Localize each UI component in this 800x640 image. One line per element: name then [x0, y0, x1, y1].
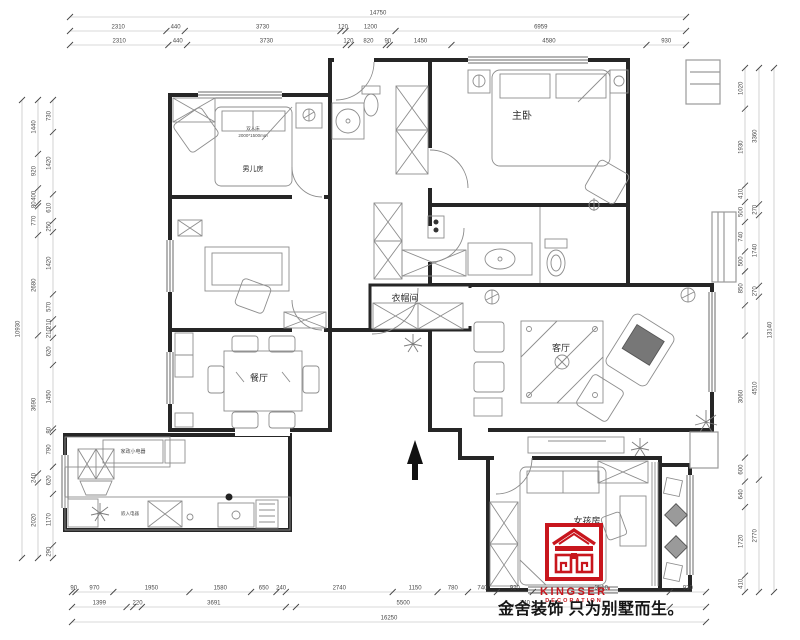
dim-label: 290 [47, 546, 53, 557]
dim-label: 3060 [739, 389, 745, 403]
dim-label: 210 [47, 328, 53, 339]
dim-label: 80 [47, 426, 53, 433]
dim-top-row-3: 231044037301208209014504580930 [67, 39, 689, 49]
dim-label: 16250 [381, 616, 398, 622]
dim-label: 1399 [93, 601, 107, 607]
dim-label: 610 [47, 202, 53, 213]
dim-label: 410 [739, 188, 745, 199]
dim-label: 570 [47, 301, 53, 312]
dim-label: 240 [276, 586, 287, 592]
dim-label: 1200 [364, 25, 378, 31]
dim-label: 1450 [414, 39, 428, 45]
dim-label: 850 [739, 283, 745, 294]
room-label-master-bedroom: 主卧 [512, 109, 532, 122]
dim-label: 4580 [542, 39, 556, 45]
dim-label: 3730 [260, 39, 274, 45]
watermark-slogan: 金舍装饰 只为别墅而生。 [498, 595, 698, 619]
dim-label: 780 [448, 586, 459, 592]
dim-label: 13140 [768, 321, 774, 338]
bed-size-label: 2000*1500mm [238, 133, 268, 138]
dim-label: 6959 [534, 25, 548, 31]
dim-label: 640 [739, 489, 745, 500]
dim-right-total: 13140 [768, 65, 778, 595]
dim-right-row-2: 3360270174027045102770 [753, 65, 763, 595]
dim-label: 600 [739, 464, 745, 475]
dim-label: 770 [32, 215, 38, 226]
dim-label: 2740 [333, 586, 347, 592]
dim-label: 4510 [753, 381, 759, 395]
dim-label: 3360 [753, 129, 759, 143]
dim-label: 930 [683, 586, 694, 592]
dim-label: 90 [70, 586, 77, 592]
dim-label: 1420 [47, 256, 53, 270]
kingser-logo: KINGSER' DECORATION [540, 523, 608, 605]
built-in-appliance-label: 嵌入电器 [121, 510, 139, 517]
dim-label: 920 [32, 165, 38, 176]
dim-label: 410 [739, 578, 745, 589]
dim-label: 790 [47, 444, 53, 455]
dim-label: 1720 [739, 534, 745, 548]
dim-right-row-3: 1020193041050074050085030606006401720410 [739, 65, 749, 595]
dim-label: 650 [259, 586, 270, 592]
dim-label: 620 [47, 475, 53, 486]
dim-label: 1150 [409, 586, 423, 592]
dim-label: 740 [477, 586, 488, 592]
dim-label: 2770 [753, 528, 759, 542]
room-label-dining-room: 餐厅 [250, 372, 268, 383]
dim-label: 1020 [739, 81, 745, 95]
dim-label: 440 [173, 39, 184, 45]
floor-plan-page: 1475023104403730120120069592310440373012… [0, 0, 800, 640]
dim-label: 220 [133, 601, 144, 607]
dim-label: 1930 [739, 140, 745, 154]
floor-plan-svg: 1475023104403730120120069592310440373012… [0, 0, 800, 640]
dim-label: 500 [739, 256, 745, 267]
bed-type-label: 双人床 [246, 125, 260, 132]
dim-label: 2310 [112, 25, 126, 31]
dim-label: 400 [32, 190, 38, 201]
dim-label: 3690 [32, 397, 38, 411]
dim-label: 820 [363, 39, 374, 45]
north-arrow [407, 440, 423, 480]
dim-label: 250 [47, 221, 53, 232]
dim-label: 3691 [207, 601, 221, 607]
room-label-boys-room: 男儿房 [243, 164, 264, 173]
dim-label: 5500 [397, 601, 411, 607]
room-label-living-room: 客厅 [552, 342, 570, 353]
walls [65, 60, 712, 590]
dim-label: 2020 [32, 513, 38, 527]
dim-top-total: 14750 [67, 11, 689, 21]
dim-label: 500 [739, 206, 745, 217]
room-label-cloakroom: 衣帽间 [391, 292, 418, 303]
dim-label: 920 [510, 586, 521, 592]
dim-label: 1580 [214, 586, 228, 592]
dim-left-total: 10930 [16, 97, 26, 561]
dim-label: 730 [47, 110, 53, 121]
dim-label: 3730 [256, 25, 270, 31]
dim-label: 930 [661, 39, 672, 45]
dim-label: 90 [384, 39, 391, 45]
kingser-logo-emblem [545, 523, 603, 581]
dim-label: 620 [47, 346, 53, 357]
kitchen-appliance-label: 家政小电器 [120, 448, 145, 455]
dim-label: 270 [753, 286, 759, 297]
dim-left-row-2: 144092040080770268036902402020 [32, 97, 42, 561]
dim-label: 1440 [32, 120, 38, 134]
dim-label: 1420 [47, 156, 53, 170]
dim-label: 970 [89, 586, 100, 592]
dim-label: 1740 [753, 243, 759, 257]
dim-label: 210 [47, 318, 53, 329]
dim-label: 1450 [47, 389, 53, 403]
dim-label: 120 [343, 39, 354, 45]
dim-label: 740 [739, 231, 745, 242]
dim-left-row-3: 7301420610250142057021021062014508079062… [47, 97, 57, 561]
dim-label: 2680 [32, 278, 38, 292]
dim-label: 270 [753, 204, 759, 215]
dim-label: 2310 [112, 39, 126, 45]
dim-label: 10930 [16, 320, 22, 337]
dim-label: 80 [32, 201, 38, 208]
dim-top-row-2: 2310440373012012006959 [67, 25, 689, 35]
dim-label: 1950 [145, 586, 159, 592]
dim-label: 1170 [47, 513, 53, 527]
tv-console [528, 437, 624, 453]
dim-label: 240 [32, 472, 38, 483]
dim-label: 440 [171, 25, 182, 31]
dim-label: 14750 [370, 11, 387, 17]
dim-label: 120 [338, 25, 349, 31]
